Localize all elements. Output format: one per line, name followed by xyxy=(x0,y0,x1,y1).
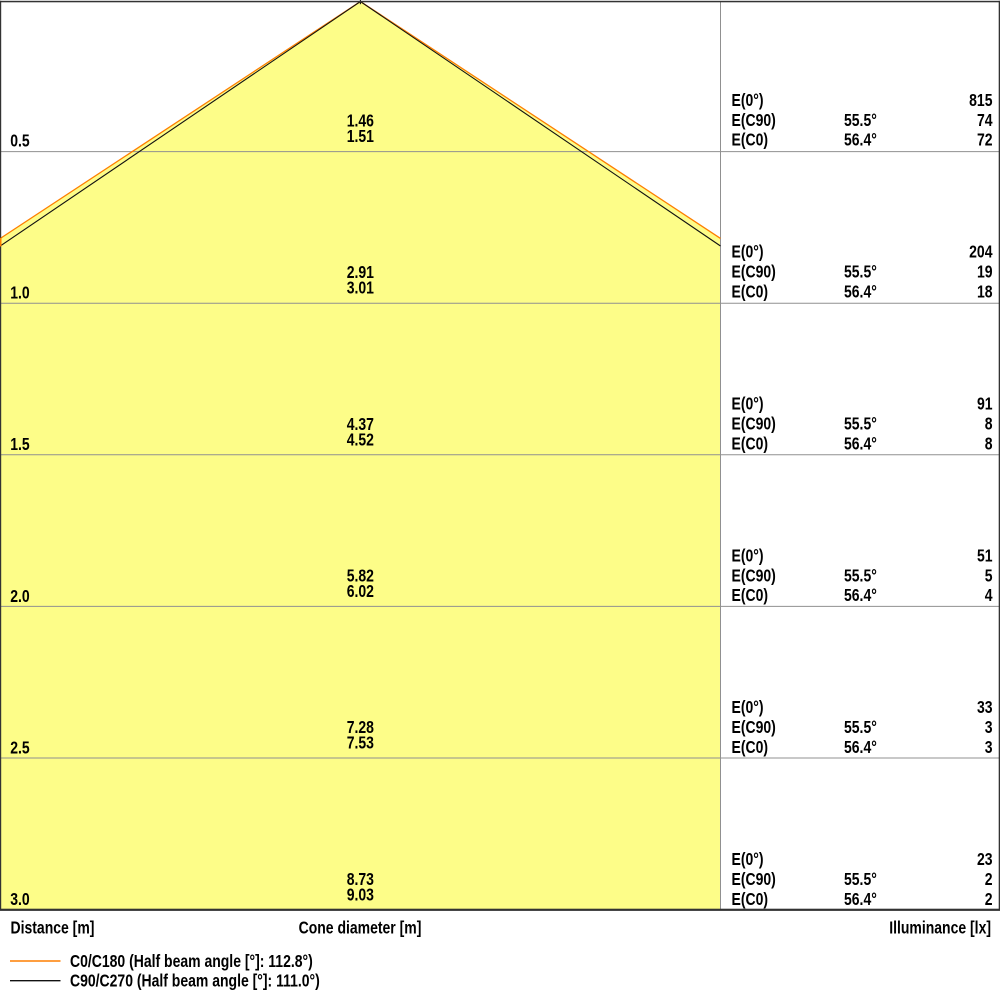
svg-text:2: 2 xyxy=(985,891,993,910)
svg-text:56.4°: 56.4° xyxy=(844,283,877,302)
svg-text:815: 815 xyxy=(969,91,993,110)
svg-text:1.5: 1.5 xyxy=(10,436,30,455)
svg-text:55.5°: 55.5° xyxy=(844,719,877,738)
svg-text:E(0°): E(0°) xyxy=(732,243,764,262)
svg-text:C0/C180 (Half beam angle [°]:: C0/C180 (Half beam angle [°]: 112.8°) xyxy=(70,953,313,972)
svg-text:2.5: 2.5 xyxy=(10,739,30,758)
svg-text:8: 8 xyxy=(985,435,993,454)
svg-text:56.4°: 56.4° xyxy=(844,131,877,150)
svg-text:4: 4 xyxy=(985,587,993,606)
svg-text:E(0°): E(0°) xyxy=(732,699,764,718)
svg-text:5: 5 xyxy=(985,567,993,586)
svg-text:E(0°): E(0°) xyxy=(732,395,764,414)
svg-text:Cone diameter [m]: Cone diameter [m] xyxy=(299,919,422,938)
svg-text:55.5°: 55.5° xyxy=(844,871,877,890)
svg-text:E(C0): E(C0) xyxy=(732,131,769,150)
svg-text:18: 18 xyxy=(977,283,993,302)
svg-text:E(0°): E(0°) xyxy=(732,547,764,566)
svg-text:E(C0): E(C0) xyxy=(732,435,769,454)
svg-text:E(C0): E(C0) xyxy=(732,283,769,302)
svg-text:E(C90): E(C90) xyxy=(732,567,776,586)
svg-text:E(C90): E(C90) xyxy=(732,719,776,738)
svg-text:72: 72 xyxy=(977,131,993,150)
svg-text:6.02: 6.02 xyxy=(347,583,374,602)
svg-text:3.01: 3.01 xyxy=(347,279,374,298)
svg-text:E(C90): E(C90) xyxy=(732,111,776,130)
svg-text:3.0: 3.0 xyxy=(10,891,30,910)
svg-text:Illuminance [lx]: Illuminance [lx] xyxy=(889,919,991,938)
svg-text:0.5: 0.5 xyxy=(10,132,30,151)
svg-text:E(C0): E(C0) xyxy=(732,587,769,606)
svg-text:1.51: 1.51 xyxy=(347,128,374,147)
svg-text:204: 204 xyxy=(969,243,993,262)
svg-text:56.4°: 56.4° xyxy=(844,891,877,910)
svg-text:7.53: 7.53 xyxy=(347,734,374,753)
svg-text:3: 3 xyxy=(985,719,993,738)
svg-text:33: 33 xyxy=(977,699,993,718)
svg-text:91: 91 xyxy=(977,395,993,414)
svg-text:9.03: 9.03 xyxy=(347,886,374,905)
svg-text:4.52: 4.52 xyxy=(347,431,374,450)
svg-text:3: 3 xyxy=(985,739,993,758)
svg-text:2.0: 2.0 xyxy=(10,587,30,606)
svg-text:23: 23 xyxy=(977,851,993,870)
svg-text:19: 19 xyxy=(977,263,993,282)
svg-text:55.5°: 55.5° xyxy=(844,263,877,282)
svg-text:8: 8 xyxy=(985,415,993,434)
svg-text:56.4°: 56.4° xyxy=(844,739,877,758)
svg-text:Distance [m]: Distance [m] xyxy=(11,919,95,938)
svg-text:74: 74 xyxy=(977,111,993,130)
svg-text:2: 2 xyxy=(985,871,993,890)
svg-text:C90/C270 (Half beam angle [°]:: C90/C270 (Half beam angle [°]: 111.0°) xyxy=(70,972,320,991)
svg-text:E(0°): E(0°) xyxy=(732,91,764,110)
svg-text:E(C0): E(C0) xyxy=(732,891,769,910)
svg-text:E(C0): E(C0) xyxy=(732,739,769,758)
svg-text:55.5°: 55.5° xyxy=(844,415,877,434)
svg-text:51: 51 xyxy=(977,547,993,566)
svg-text:E(C90): E(C90) xyxy=(732,871,776,890)
svg-text:55.5°: 55.5° xyxy=(844,111,877,130)
svg-text:56.4°: 56.4° xyxy=(844,587,877,606)
svg-text:1.0: 1.0 xyxy=(10,284,30,303)
svg-text:E(C90): E(C90) xyxy=(732,415,776,434)
svg-text:E(0°): E(0°) xyxy=(732,851,764,870)
svg-text:55.5°: 55.5° xyxy=(844,567,877,586)
svg-text:56.4°: 56.4° xyxy=(844,435,877,454)
svg-text:E(C90): E(C90) xyxy=(732,263,776,282)
